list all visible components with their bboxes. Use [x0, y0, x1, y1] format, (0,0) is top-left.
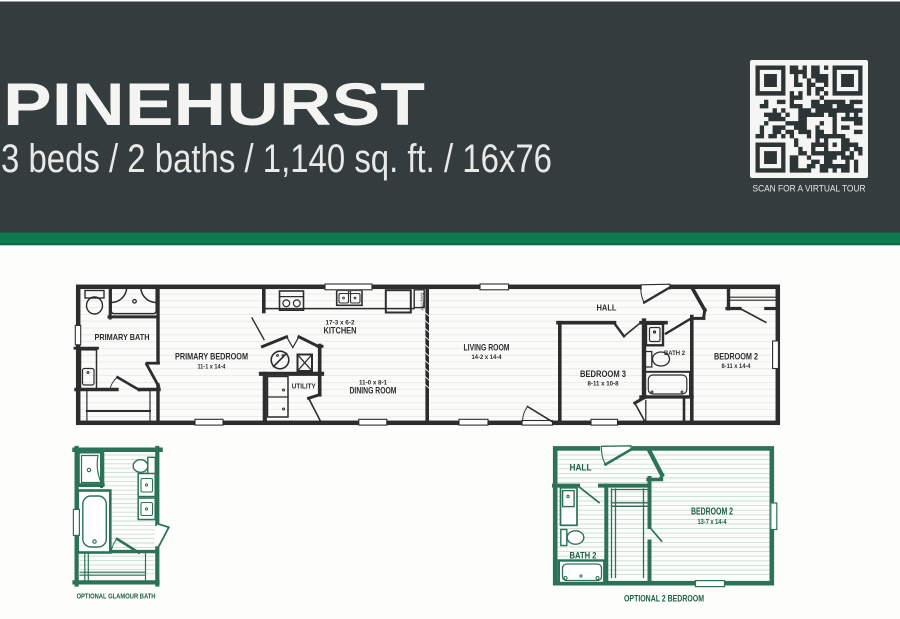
svg-text:BEDROOM 2: BEDROOM 2	[714, 352, 758, 362]
svg-text:KITCHEN: KITCHEN	[324, 326, 357, 336]
svg-text:LIVING ROOM: LIVING ROOM	[464, 343, 510, 353]
svg-text:PINEHURST: PINEHURST	[3, 71, 425, 138]
svg-text:BATH 2: BATH 2	[664, 350, 685, 357]
svg-text:13-7 x 14-4: 13-7 x 14-4	[698, 519, 727, 526]
svg-text:PRIMARY BATH: PRIMARY BATH	[95, 333, 150, 342]
svg-text:PANTRY: PANTRY	[420, 293, 425, 311]
svg-text:SCAN FOR A VIRTUAL TOUR: SCAN FOR A VIRTUAL TOUR	[753, 184, 866, 195]
svg-text:PRIMARY BEDROOM: PRIMARY BEDROOM	[175, 352, 248, 362]
svg-text:BEDROOM 2: BEDROOM 2	[691, 507, 733, 518]
svg-text:8-11 x 10-8: 8-11 x 10-8	[588, 381, 619, 388]
svg-text:14-2 x 14-4: 14-2 x 14-4	[472, 354, 502, 361]
svg-text:HALL: HALL	[597, 304, 617, 313]
svg-text:BATH 2: BATH 2	[570, 550, 597, 560]
svg-text:OPTIONAL 2 BEDROOM: OPTIONAL 2 BEDROOM	[624, 594, 704, 604]
svg-text:3 beds / 2 baths / 1,140 sq. f: 3 beds / 2 baths / 1,140 sq. ft. / 16x76	[1, 137, 552, 181]
svg-text:UTILITY: UTILITY	[292, 381, 316, 390]
svg-text:DINING ROOM: DINING ROOM	[350, 386, 397, 396]
svg-text:8-11 x 14-4: 8-11 x 14-4	[722, 364, 752, 370]
svg-text:11-1 x 14-4: 11-1 x 14-4	[198, 364, 226, 371]
svg-text:OPTIONAL GLAMOUR BATH: OPTIONAL GLAMOUR BATH	[77, 592, 156, 601]
svg-text:BEDROOM 3: BEDROOM 3	[580, 369, 626, 379]
svg-text:HALL: HALL	[570, 462, 593, 472]
